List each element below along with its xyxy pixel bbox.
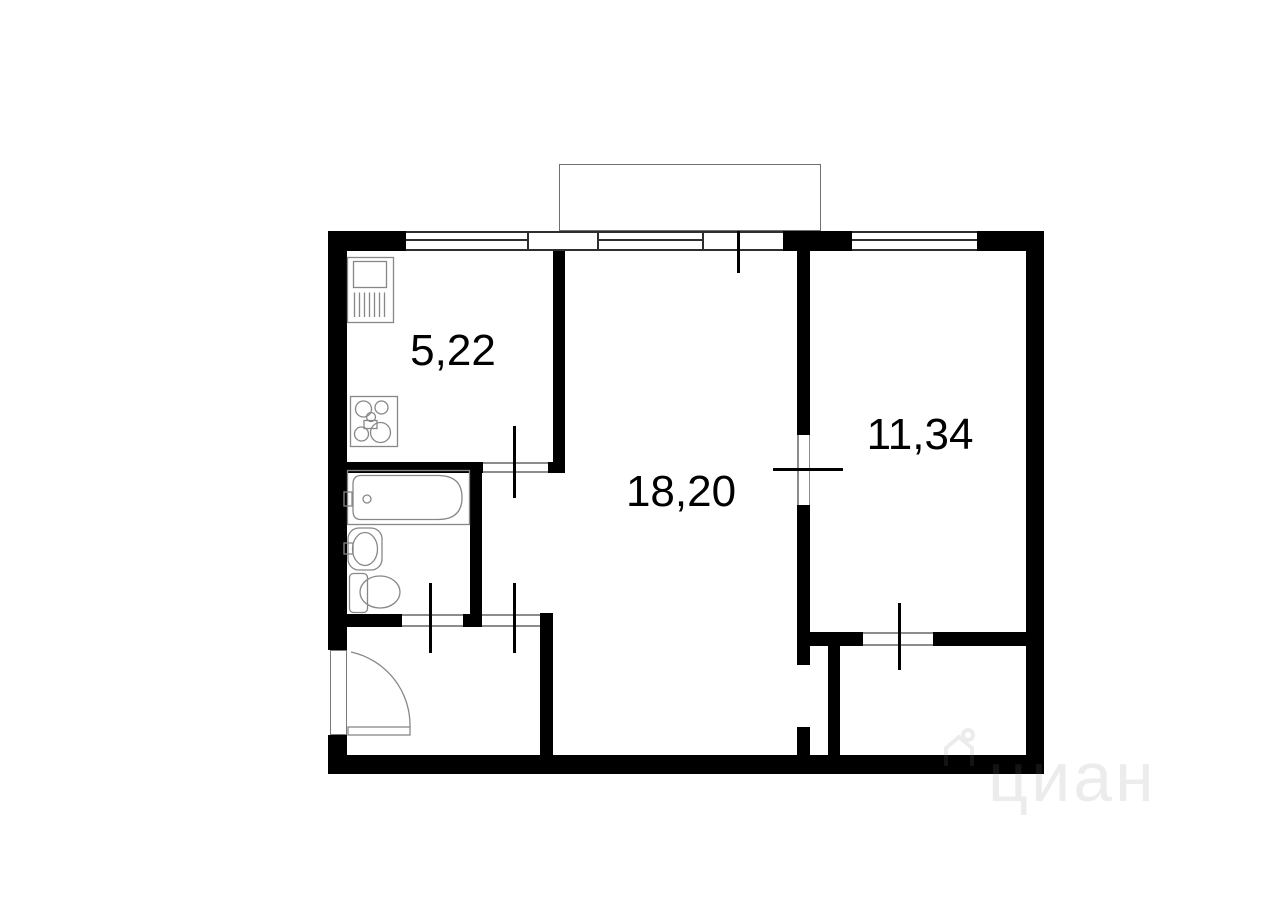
washbasin-icon: [344, 528, 382, 570]
kitchen-sink-icon: [348, 258, 394, 323]
kitchen-area-label: 5,22: [410, 326, 496, 376]
stove-icon: [351, 397, 398, 447]
watermark-brand-text: циан: [988, 742, 1157, 812]
bathtub-icon: [344, 471, 470, 525]
entry-door-icon: [348, 652, 410, 735]
cian-house-icon: [942, 726, 978, 768]
living-room-area-label: 18,20: [626, 467, 736, 517]
floor-plan: 5,22 18,20 11,34 циан: [0, 0, 1280, 905]
watermark: циан: [942, 726, 1157, 812]
bedroom-area-label: 11,34: [867, 410, 974, 460]
toilet-icon: [350, 574, 401, 613]
